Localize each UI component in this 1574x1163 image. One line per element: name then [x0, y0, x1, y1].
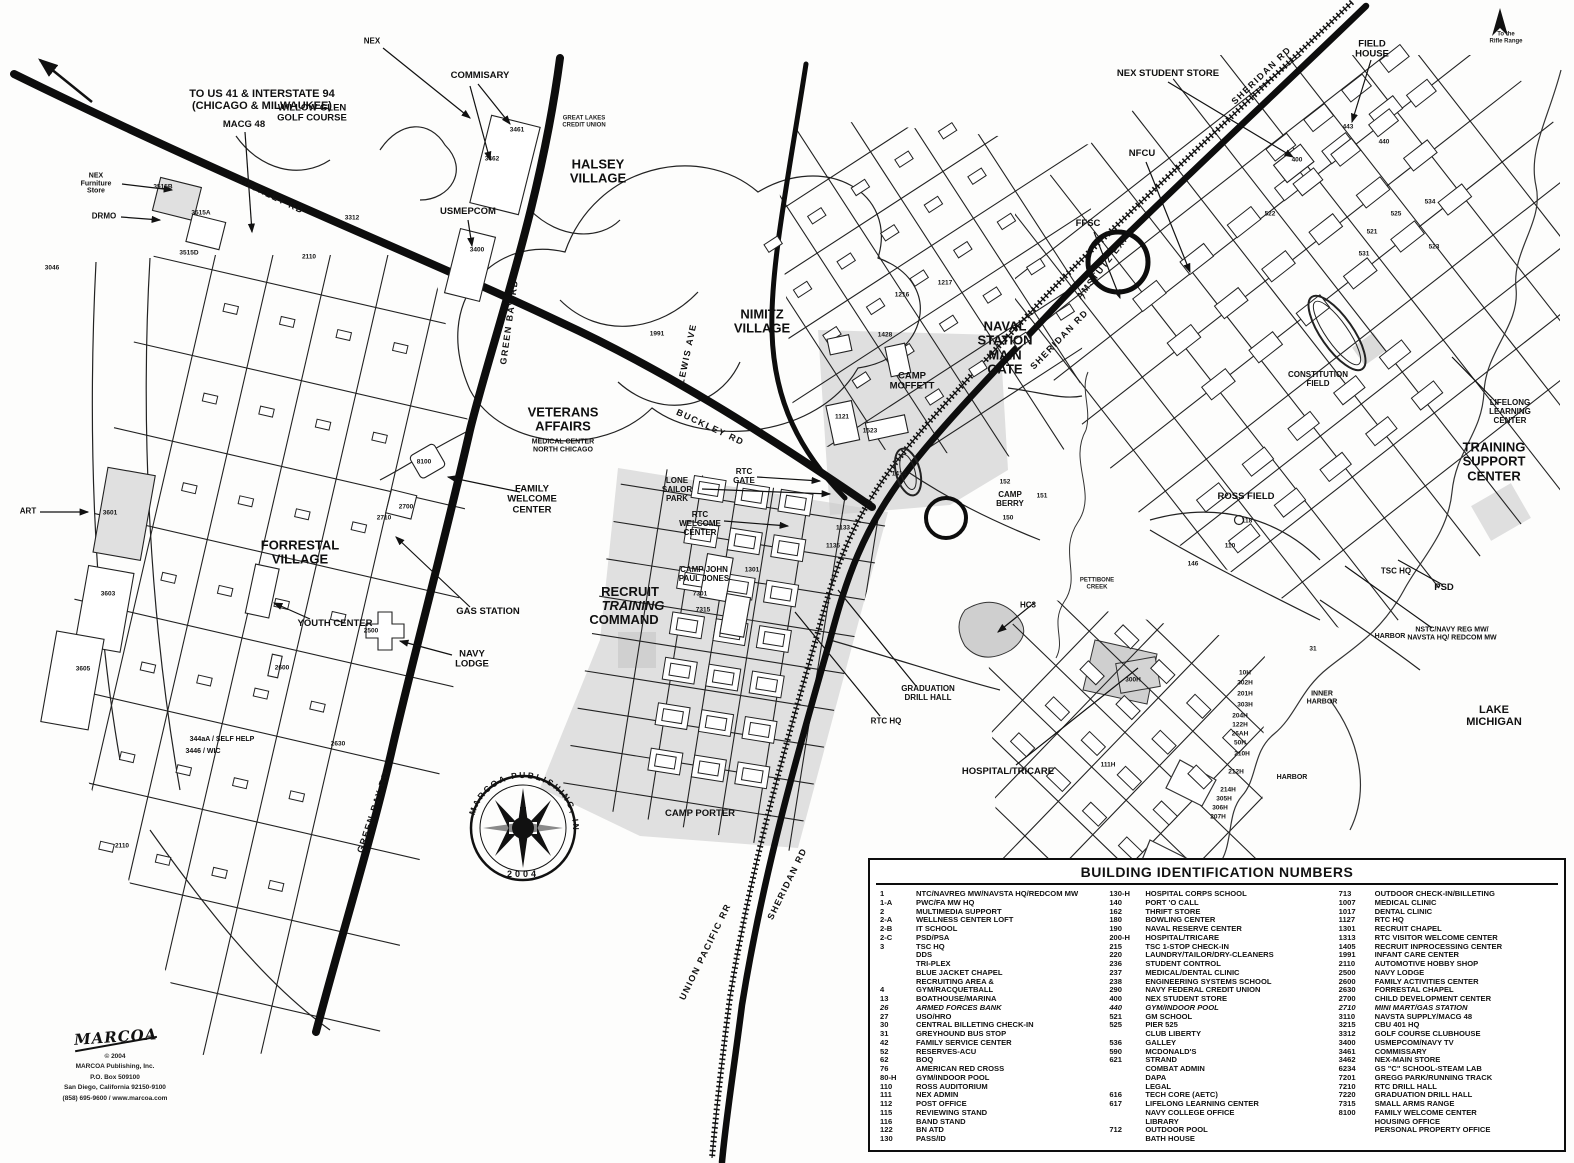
- legend-row: 111NEX ADMIN: [880, 1091, 1101, 1100]
- legend-building-number: [880, 951, 916, 960]
- legend-building-name: COMBAT ADMIN: [1145, 1065, 1330, 1074]
- legend-building-name: USO/HRO: [916, 1013, 1101, 1022]
- legend-row: 7220GRADUATION DRILL HALL: [1339, 1091, 1560, 1100]
- legend-building-name: NAVY LODGE: [1375, 969, 1560, 978]
- legend-building-number: [1109, 1109, 1145, 1118]
- legend-row: 3400USMEPCOM/NAVY TV: [1339, 1039, 1560, 1048]
- legend-building-name: MEDICAL/DENTAL CLINIC: [1145, 969, 1330, 978]
- legend-building-name: MULTIMEDIA SUPPORT: [916, 908, 1101, 917]
- legend-row: RECRUITING AREA &: [880, 978, 1101, 987]
- building-number: 7315: [696, 607, 710, 614]
- legend-building-name: FORRESTAL CHAPEL: [1375, 986, 1560, 995]
- legend-building-name: BAND STAND: [916, 1118, 1101, 1127]
- legend-row: 2500NAVY LODGE: [1339, 969, 1560, 978]
- legend-row: 536GALLEY: [1109, 1039, 1330, 1048]
- legend-building-name: FAMILY SERVICE CENTER: [916, 1039, 1101, 1048]
- legend-building-name: TSC 1-STOP CHECK-IN: [1145, 943, 1330, 952]
- legend-column-3: 713OUTDOOR CHECK-IN/BILLETING1007MEDICAL…: [1339, 890, 1560, 1144]
- legend-row: 237MEDICAL/DENTAL CLINIC: [1109, 969, 1330, 978]
- legend-building-number: [1339, 1118, 1375, 1127]
- legend-row: 31GREYHOUND BUS STOP: [880, 1030, 1101, 1039]
- building-number: 2600: [275, 665, 289, 672]
- legend-building-name: IT SCHOOL: [916, 925, 1101, 934]
- legend-row: 590MCDONALD'S: [1109, 1048, 1330, 1057]
- building-number: 1133: [836, 525, 850, 532]
- building-number: 305H: [1216, 796, 1232, 803]
- map-label: NIMITZ VILLAGE: [734, 308, 790, 337]
- building-number: 1217: [938, 280, 952, 287]
- legend-building-name: TSC HQ: [916, 943, 1101, 952]
- legend-building-name: BN ATD: [916, 1126, 1101, 1135]
- legend-row: 42FAMILY SERVICE CENTER: [880, 1039, 1101, 1048]
- building-number: 3461: [510, 127, 524, 134]
- legend-building-name: CBU 401 HQ: [1375, 1021, 1560, 1030]
- legend-building-name: OUTDOOR CHECK-IN/BILLETING: [1375, 890, 1560, 899]
- legend-row: 112POST OFFICE: [880, 1100, 1101, 1109]
- building-number: 400: [1292, 157, 1303, 164]
- compass-rose: N MARCOA PUBLISHING, INC. 2004: [448, 762, 598, 894]
- legend-row: 1313RTC VISITOR WELCOME CENTER: [1339, 934, 1560, 943]
- building-number: 300H: [1125, 677, 1141, 684]
- building-number: 10H: [1239, 670, 1251, 677]
- credit-line: (858) 695-9600 / www.marcoa.com: [30, 1094, 200, 1104]
- legend-column-1: 1NTC/NAVREG MW/NAVSTA HQ/REDCOM MW1-APWC…: [880, 890, 1101, 1144]
- map-label: NEX Furniture Store: [81, 172, 112, 195]
- building-number: 443: [1343, 124, 1354, 131]
- map-label: LONE SAILOR PARK: [662, 477, 692, 503]
- legend-row: 116BAND STAND: [880, 1118, 1101, 1127]
- legend-row: 80-HGYM/INDOOR POOL: [880, 1074, 1101, 1083]
- map-label: FAMILY WELCOME CENTER: [507, 484, 557, 515]
- legend-row: PERSONAL PROPERTY OFFICE: [1339, 1126, 1560, 1135]
- map-label: 3446 / WIC: [185, 748, 220, 756]
- legend-row: 400NEX STUDENT STORE: [1109, 995, 1330, 1004]
- building-number: 523: [1429, 244, 1440, 251]
- map-label: MACG 48: [223, 120, 265, 130]
- legend-building-number: [880, 969, 916, 978]
- building-number: 7301: [693, 591, 707, 598]
- map-label: NEX STUDENT STORE: [1117, 69, 1219, 79]
- legend-row: 220LAUNDRY/TAILOR/DRY-CLEANERS: [1109, 951, 1330, 960]
- building-number: 201H: [1237, 691, 1253, 698]
- map-label: NFCU: [1129, 149, 1155, 159]
- legend-building-name: HOSPITAL/TRICARE: [1145, 934, 1330, 943]
- map-label: NAVAL STATION MAIN GATE: [977, 319, 1032, 376]
- building-number: 2500: [364, 628, 378, 635]
- legend-building-name: HOSPITAL CORPS SCHOOL: [1145, 890, 1330, 899]
- building-number: 151: [1037, 493, 1048, 500]
- map-label: COMMAND: [589, 613, 658, 627]
- legend-building-name: GRADUATION DRILL HALL: [1375, 1091, 1560, 1100]
- legend-panel: BUILDING IDENTIFICATION NUMBERS 1NTC/NAV…: [868, 858, 1566, 1152]
- legend-row: 2-BIT SCHOOL: [880, 925, 1101, 934]
- map-label: PETTIBONE CREEK: [1080, 577, 1114, 590]
- legend-building-name: HOUSING OFFICE: [1375, 1118, 1560, 1127]
- map-label: NEX: [364, 38, 380, 47]
- legend-row: 3461COMMISSARY: [1339, 1048, 1560, 1057]
- building-number: 122H: [1232, 722, 1248, 729]
- legend-row: 2600FAMILY ACTIVITIES CENTER: [1339, 978, 1560, 987]
- map-label: CAMP MOFFETT: [890, 372, 935, 393]
- legend-row: NAVY COLLEGE OFFICE: [1109, 1109, 1330, 1118]
- map-label: VETERANS AFFAIRS: [528, 406, 599, 435]
- legend-row: 115REVIEWING STAND: [880, 1109, 1101, 1118]
- legend-building-name: GREGG PARK/RUNNING TRACK: [1375, 1074, 1560, 1083]
- building-number: 3605: [76, 666, 90, 673]
- map-label: COMMISARY: [451, 71, 510, 81]
- building-number: 2630: [331, 741, 345, 748]
- legend-building-name: BOWLING CENTER: [1145, 916, 1330, 925]
- credit-line: MARCOA Publishing, Inc.: [30, 1062, 200, 1072]
- map-label: TRAINING SUPPORT CENTER: [1454, 441, 1534, 484]
- map-label: PSD: [1434, 583, 1454, 593]
- legend-building-name: AUTOMOTIVE HOBBY SHOP: [1375, 960, 1560, 969]
- building-number: 212H: [1228, 769, 1244, 776]
- legend-row: 2MULTIMEDIA SUPPORT: [880, 908, 1101, 917]
- legend-building-name: BOQ: [916, 1056, 1101, 1065]
- legend-row: 2-AWELLNESS CENTER LOFT: [880, 916, 1101, 925]
- legend-building-name: USMEPCOM/NAVY TV: [1375, 1039, 1560, 1048]
- legend-building-name: DENTAL CLINIC: [1375, 908, 1560, 917]
- legend-building-name: POST OFFICE: [916, 1100, 1101, 1109]
- building-number: 152: [1000, 479, 1011, 486]
- legend-building-name: RECRUIT CHAPEL: [1375, 925, 1560, 934]
- legend-building-name: WELLNESS CENTER LOFT: [916, 916, 1101, 925]
- legend-building-name: DAPA: [1145, 1074, 1330, 1083]
- legend-row: DAPA: [1109, 1074, 1330, 1083]
- legend-columns: 1NTC/NAVREG MW/NAVSTA HQ/REDCOM MW1-APWC…: [870, 885, 1564, 1144]
- legend-building-name: ROSS AUDITORIUM: [916, 1083, 1101, 1092]
- building-number: 3400: [470, 247, 484, 254]
- map-label: ROSS FIELD: [1217, 492, 1274, 502]
- legend-building-name: STUDENT CONTROL: [1145, 960, 1330, 969]
- legend-building-name: REVIEWING STAND: [916, 1109, 1101, 1118]
- building-number: 26AH: [1232, 731, 1249, 738]
- building-number: 3312: [345, 215, 359, 222]
- map-label: FFSC: [1076, 219, 1101, 229]
- legend-row: 26ARMED FORCES BANK: [880, 1004, 1101, 1013]
- map-label: INNER HARBOR: [1307, 690, 1338, 705]
- map-label: HC3: [1020, 602, 1036, 611]
- legend-row: 140PORT 'O CALL: [1109, 899, 1330, 908]
- legend-building-name: NAVSTA SUPPLY/MACG 48: [1375, 1013, 1560, 1022]
- legend-row: 2700CHILD DEVELOPMENT CENTER: [1339, 995, 1560, 1004]
- building-number: 1991: [650, 331, 664, 338]
- legend-building-name: GYM/INDOOR POOL: [916, 1074, 1101, 1083]
- legend-row: 1991INFANT CARE CENTER: [1339, 951, 1560, 960]
- legend-building-name: GYM/RACQUETBALL: [916, 986, 1101, 995]
- building-number: 2710: [377, 515, 391, 522]
- legend-building-name: PSD/PSA: [916, 934, 1101, 943]
- legend-building-name: FAMILY ACTIVITIES CENTER: [1375, 978, 1560, 987]
- legend-building-number: 621: [1109, 1056, 1145, 1065]
- legend-row: COMBAT ADMIN: [1109, 1065, 1330, 1074]
- building-number: 204H: [1232, 713, 1248, 720]
- legend-row: 7210RTC DRILL HALL: [1339, 1083, 1560, 1092]
- legend-building-name: PERSONAL PROPERTY OFFICE: [1375, 1126, 1560, 1135]
- building-number: 3515B: [153, 184, 172, 191]
- legend-row: 30CENTRAL BILLETING CHECK-IN: [880, 1021, 1101, 1030]
- legend-row: 1405RECRUIT INPROCESSING CENTER: [1339, 943, 1560, 952]
- legend-building-name: BATH HOUSE: [1145, 1135, 1330, 1144]
- building-number: 31: [1309, 646, 1316, 653]
- building-number: 306H: [1212, 805, 1228, 812]
- legend-building-number: 712: [1109, 1126, 1145, 1135]
- map-label: LIFELONG LEARNING CENTER: [1478, 399, 1542, 425]
- legend-building-name: BLUE JACKET CHAPEL: [916, 969, 1101, 978]
- map-label: HARBOR: [1375, 633, 1406, 641]
- legend-row: 200-HHOSPITAL/TRICARE: [1109, 934, 1330, 943]
- credit-line: San Diego, California 92150-9100: [30, 1083, 200, 1093]
- legend-title: BUILDING IDENTIFICATION NUMBERS: [876, 860, 1558, 885]
- compass-year: 2004: [507, 869, 539, 879]
- legend-row: 616TECH CORE (AETC): [1109, 1091, 1330, 1100]
- compass-star: N: [483, 788, 563, 868]
- legend-row: 62BOQ: [880, 1056, 1101, 1065]
- legend-building-name: NAVY FEDERAL CREDIT UNION: [1145, 986, 1330, 995]
- legend-building-name: GOLF COURSE CLUBHOUSE: [1375, 1030, 1560, 1039]
- building-number: 303H: [1237, 702, 1253, 709]
- legend-building-name: OUTDOOR POOL: [1145, 1126, 1330, 1135]
- building-number: 2700: [399, 504, 413, 511]
- map-label: WILLOW GLEN GOLF COURSE: [277, 104, 347, 125]
- map-label: HARBOR: [1277, 774, 1308, 782]
- legend-row: 713OUTDOOR CHECK-IN/BILLETING: [1339, 890, 1560, 899]
- building-number: 8100: [417, 459, 431, 466]
- legend-row: 1NTC/NAVREG MW/NAVSTA HQ/REDCOM MW: [880, 890, 1101, 899]
- legend-row: 215TSC 1-STOP CHECK-IN: [1109, 943, 1330, 952]
- legend-building-name: CHILD DEVELOPMENT CENTER: [1375, 995, 1560, 1004]
- legend-row: 3110NAVSTA SUPPLY/MACG 48: [1339, 1013, 1560, 1022]
- legend-building-number: 3: [880, 943, 916, 952]
- legend-row: 712OUTDOOR POOL: [1109, 1126, 1330, 1135]
- legend-row: 8100FAMILY WELCOME CENTER: [1339, 1109, 1560, 1118]
- legend-building-number: 130: [880, 1135, 916, 1144]
- legend-building-name: THRIFT STORE: [1145, 908, 1330, 917]
- legend-building-name: RESERVES-ACU: [916, 1048, 1101, 1057]
- building-number: 2110: [302, 254, 316, 261]
- legend-row: DDS: [880, 951, 1101, 960]
- legend-row: 440GYM/INDOOR POOL: [1109, 1004, 1330, 1013]
- credit-line: P.O. Box 509100: [30, 1073, 200, 1083]
- legend-building-number: [1109, 1135, 1145, 1144]
- legend-building-number: [1109, 1074, 1145, 1083]
- legend-column-2: 130-HHOSPITAL CORPS SCHOOL140PORT 'O CAL…: [1109, 890, 1330, 1144]
- map-label: YOUTH CENTER: [298, 619, 373, 629]
- map-label: TSC HQ: [1381, 568, 1411, 577]
- legend-row: 236STUDENT CONTROL: [1109, 960, 1330, 969]
- legend-building-number: 1-A: [880, 899, 916, 908]
- legend-row: 2110AUTOMOTIVE HOBBY SHOP: [1339, 960, 1560, 969]
- legend-building-name: NAVAL RESERVE CENTER: [1145, 925, 1330, 934]
- legend-building-name: LIFELONG LEARNING CENTER: [1145, 1100, 1330, 1109]
- legend-row: 52RESERVES-ACU: [880, 1048, 1101, 1057]
- building-number: 3046: [45, 265, 59, 272]
- map-label: MEDICAL CENTER NORTH CHICAGO: [532, 438, 594, 453]
- map-label: FORRESTAL VILLAGE: [261, 539, 339, 568]
- legend-row: 621STRAND: [1109, 1056, 1330, 1065]
- legend-row: 6234GS "C" SCHOOL-STEAM LAB: [1339, 1065, 1560, 1074]
- building-number: 146: [1188, 561, 1199, 568]
- legend-row: TRI-PLEX: [880, 960, 1101, 969]
- legend-row: 521GM SCHOOL: [1109, 1013, 1330, 1022]
- building-number: 3462: [485, 156, 499, 163]
- map-label: DRMO: [92, 213, 116, 222]
- legend-row: 130PASS/ID: [880, 1135, 1101, 1144]
- legend-building-name: DDS: [916, 951, 1101, 960]
- legend-row: 1-APWC/FA MW HQ: [880, 899, 1101, 908]
- map-label: CAMP JOHN PAUL JONES: [679, 566, 729, 584]
- legend-row: 1301RECRUIT CHAPEL: [1339, 925, 1560, 934]
- map-label: GAS STATION: [456, 607, 520, 617]
- legend-building-name: SMALL ARMS RANGE: [1375, 1100, 1560, 1109]
- legend-building-name: PASS/ID: [916, 1135, 1101, 1144]
- legend-building-number: [880, 978, 916, 987]
- building-number: 534: [1425, 199, 1436, 206]
- legend-row: 3215CBU 401 HQ: [1339, 1021, 1560, 1030]
- legend-building-name: LAUNDRY/TAILOR/DRY-CLEANERS: [1145, 951, 1330, 960]
- building-number: 2110: [115, 843, 129, 850]
- map-label: NAVY LODGE: [455, 650, 489, 671]
- building-number: 210H: [1234, 751, 1250, 758]
- legend-row: 3312GOLF COURSE CLUBHOUSE: [1339, 1030, 1560, 1039]
- building-number: 1135: [826, 543, 840, 550]
- map-label: CAMP BERRY: [996, 491, 1024, 509]
- legend-row: HOUSING OFFICE: [1339, 1118, 1560, 1127]
- legend-building-name: PWC/FA MW HQ: [916, 899, 1101, 908]
- legend-row: 110ROSS AUDITORIUM: [880, 1083, 1101, 1092]
- legend-row: LIBRARY: [1109, 1118, 1330, 1127]
- map-label: RTC GATE: [733, 468, 755, 486]
- legend-row: 2630FORRESTAL CHAPEL: [1339, 986, 1560, 995]
- legend-building-name: GM SCHOOL: [1145, 1013, 1330, 1022]
- legend-row: BATH HOUSE: [1109, 1135, 1330, 1144]
- legend-row: 7315SMALL ARMS RANGE: [1339, 1100, 1560, 1109]
- legend-row: CLUB LIBERTY: [1109, 1030, 1330, 1039]
- legend-building-name: GALLEY: [1145, 1039, 1330, 1048]
- legend-building-name: TECH CORE (AETC): [1145, 1091, 1330, 1100]
- legend-row: 4GYM/RACQUETBALL: [880, 986, 1101, 995]
- legend-row: 7201GREGG PARK/RUNNING TRACK: [1339, 1074, 1560, 1083]
- legend-row: LEGAL: [1109, 1083, 1330, 1092]
- legend-building-name: GREYHOUND BUS STOP: [916, 1030, 1101, 1039]
- legend-building-number: [880, 960, 916, 969]
- building-number: 150: [1003, 515, 1014, 522]
- building-number: 302H: [1237, 680, 1253, 687]
- building-number: 531: [1359, 251, 1370, 258]
- legend-row: 130-HHOSPITAL CORPS SCHOOL: [1109, 890, 1330, 899]
- map-label: LAKE MICHIGAN: [1454, 704, 1534, 728]
- legend-row: 238ENGINEERING SYSTEMS SCHOOL: [1109, 978, 1330, 987]
- map-label: HOSPITAL/TRICARE: [962, 767, 1054, 777]
- legend-row: 190NAVAL RESERVE CENTER: [1109, 925, 1330, 934]
- building-number: 110: [1225, 543, 1236, 550]
- map-label: NSTC/NAVY REG MW/ NAVSTA HQ/ REDCOM MW: [1407, 626, 1496, 641]
- legend-building-name: LIBRARY: [1145, 1118, 1330, 1127]
- legend-row: 162THRIFT STORE: [1109, 908, 1330, 917]
- map-label: To the Rifle Range: [1489, 31, 1522, 44]
- building-number: 1301: [745, 567, 759, 574]
- building-number: 522: [1265, 211, 1276, 218]
- legend-building-name: STRAND: [1145, 1056, 1330, 1065]
- compass-n: N: [519, 806, 526, 817]
- map-label: RTC WELCOME CENTER: [679, 511, 721, 537]
- legend-row: 122BN ATD: [880, 1126, 1101, 1135]
- legend-row: 3TSC HQ: [880, 943, 1101, 952]
- legend-building-name: ENGINEERING SYSTEMS SCHOOL: [1145, 978, 1330, 987]
- legend-building-name: INFANT CARE CENTER: [1375, 951, 1560, 960]
- building-number: 1523: [863, 428, 877, 435]
- legend-building-name: RTC HQ: [1375, 916, 1560, 925]
- building-number: 525: [1391, 211, 1402, 218]
- legend-building-name: MINI MART/GAS STATION: [1375, 1004, 1560, 1013]
- map-label: GRADUATION DRILL HALL: [901, 685, 955, 703]
- map-label: RTC HQ: [871, 718, 902, 727]
- building-number: 440: [1379, 139, 1390, 146]
- legend-row: 3462NEX-MAIN STORE: [1339, 1056, 1560, 1065]
- legend-building-name: GYM/INDOOR POOL: [1145, 1004, 1330, 1013]
- legend-building-name: MCDONALD'S: [1145, 1048, 1330, 1057]
- legend-building-name: COMMISSARY: [1375, 1048, 1560, 1057]
- map-label: GREAT LAKES CREDIT UNION: [562, 115, 605, 128]
- legend-building-name: RECRUIT INPROCESSING CENTER: [1375, 943, 1560, 952]
- legend-row: 2-CPSD/PSA: [880, 934, 1101, 943]
- building-number: 1216: [895, 292, 909, 299]
- building-number: 207H: [1210, 814, 1226, 821]
- legend-row: 27USO/HRO: [880, 1013, 1101, 1022]
- legend-building-name: BOATHOUSE/MARINA: [916, 995, 1101, 1004]
- legend-row: 1007MEDICAL CLINIC: [1339, 899, 1560, 908]
- legend-row: BLUE JACKET CHAPEL: [880, 969, 1101, 978]
- map-label: 344aA / SELF HELP: [190, 736, 255, 744]
- legend-row: 13BOATHOUSE/MARINA: [880, 995, 1101, 1004]
- legend-building-name: AMERICAN RED CROSS: [916, 1065, 1101, 1074]
- legend-building-name: NEX STUDENT STORE: [1145, 995, 1330, 1004]
- legend-building-name: CLUB LIBERTY: [1145, 1030, 1330, 1039]
- legend-building-name: NTC/NAVREG MW/NAVSTA HQ/REDCOM MW: [916, 890, 1101, 899]
- legend-building-number: [1339, 1126, 1375, 1135]
- building-number: 1121: [835, 414, 849, 421]
- legend-building-number: 8100: [1339, 1109, 1375, 1118]
- map-label: CAMP PORTER: [665, 809, 735, 819]
- publisher-credits: © 2004MARCOA Publishing, Inc.P.O. Box 50…: [30, 1052, 200, 1104]
- legend-building-number: 2-C: [880, 934, 916, 943]
- legend-building-name: NEX ADMIN: [916, 1091, 1101, 1100]
- building-number: 521: [1367, 229, 1378, 236]
- legend-row: 1127RTC HQ: [1339, 916, 1560, 925]
- legend-building-name: RTC VISITOR WELCOME CENTER: [1375, 934, 1560, 943]
- legend-building-number: [1109, 1065, 1145, 1074]
- building-number: 1428: [878, 332, 892, 339]
- map-label: FIELD HOUSE: [1355, 40, 1389, 61]
- legend-building-name: GS "C" SCHOOL-STEAM LAB: [1375, 1065, 1560, 1074]
- legend-row: 2710MINI MART/GAS STATION: [1339, 1004, 1560, 1013]
- legend-building-name: RECRUITING AREA &: [916, 978, 1101, 987]
- building-number: 3515A: [191, 210, 210, 217]
- legend-building-name: MEDICAL CLINIC: [1375, 899, 1560, 908]
- legend-row: 76AMERICAN RED CROSS: [880, 1065, 1101, 1074]
- legend-building-name: NEX-MAIN STORE: [1375, 1056, 1560, 1065]
- legend-building-name: TRI-PLEX: [916, 960, 1101, 969]
- legend-building-name: ARMED FORCES BANK: [916, 1004, 1101, 1013]
- legend-building-name: NAVY COLLEGE OFFICE: [1145, 1109, 1330, 1118]
- building-number: 3515D: [179, 250, 198, 257]
- building-number: 50H: [1234, 740, 1246, 747]
- legend-building-name: PIER 525: [1145, 1021, 1330, 1030]
- legend-row: 180BOWLING CENTER: [1109, 916, 1330, 925]
- legend-building-number: 525: [1109, 1021, 1145, 1030]
- legend-building-name: RTC DRILL HALL: [1375, 1083, 1560, 1092]
